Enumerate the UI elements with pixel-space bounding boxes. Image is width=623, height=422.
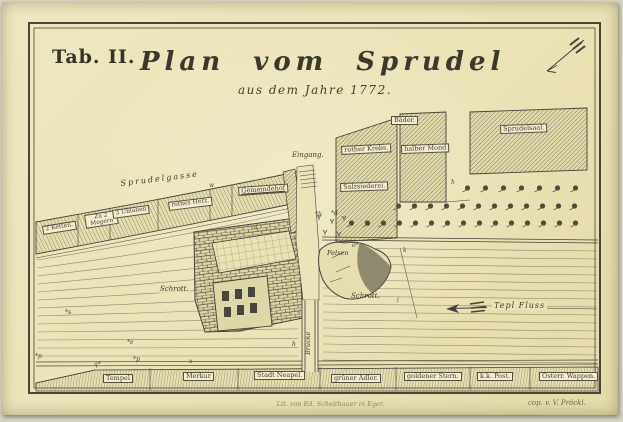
debris-label-right: Schrott. — [351, 292, 380, 300]
ref-mark-p2: *p — [133, 356, 140, 363]
house-label-salzsiederei: Salzsiederei. — [340, 181, 389, 192]
ref-mark-o: o* — [352, 242, 359, 249]
sprudel-house-complex — [194, 217, 313, 332]
scanned-map-plate: Tab. II. Plan vom Sprudel aus dem Jahre … — [0, 0, 623, 422]
ref-mark-i: i — [397, 297, 399, 304]
rock-label-felsen: Felsen — [327, 250, 348, 257]
house-label-baeder: Bäder. — [391, 116, 418, 125]
ref-mark-e: *e — [127, 339, 134, 346]
ref-mark-q: q* — [94, 361, 101, 368]
ref-mark-h1: h — [451, 179, 455, 186]
ref-mark-a: a — [254, 224, 258, 231]
ref-mark-b: *b — [315, 211, 322, 218]
house-label-sprudelsaal: Sprudelsaal. — [500, 123, 548, 134]
house-label-tempel: Tempel — [103, 374, 133, 383]
bridge-label: Brücke — [305, 332, 312, 356]
ref-mark-h2: h — [292, 341, 296, 348]
entrance-label: Eingang. — [292, 151, 324, 159]
ref-mark-d: *d — [331, 210, 338, 217]
house-label-halber-mond: halber Mond — [401, 143, 450, 154]
house-label-stadt-neapel: Stadt Neapel. — [254, 371, 305, 380]
ref-mark-p1: *p — [35, 353, 42, 360]
ref-mark-s: *s — [65, 309, 71, 316]
map-title: Plan vom Sprudel — [140, 48, 480, 78]
house-label-oesterr-wappen: Österr. Wappen. — [539, 372, 598, 381]
plate-number: Tab. II. — [52, 47, 136, 69]
ref-mark-w: w — [209, 182, 214, 189]
ref-mark-k: k — [403, 247, 407, 254]
debris-label-left: Schrott. — [159, 285, 190, 293]
house-label-merkur: Merkur — [183, 372, 214, 381]
north-arrow-icon — [547, 38, 585, 73]
river-label-tepl: Tepl Fluss — [492, 301, 547, 310]
copyist-credit: cop. v. V. Pröckl. — [528, 399, 586, 407]
house-label-gruener-adler: grüner Adler. — [331, 374, 381, 383]
ref-mark-x: x — [189, 358, 192, 365]
lithographer-credit: Lit. von Ed. Scheithauer in Eger. — [248, 401, 413, 408]
house-label-kk-post: k.k. Post. — [477, 372, 513, 381]
map-subtitle: aus dem Jahre 1772. — [225, 84, 405, 98]
house-label-goldener-stern: goldener Stern. — [404, 372, 462, 381]
